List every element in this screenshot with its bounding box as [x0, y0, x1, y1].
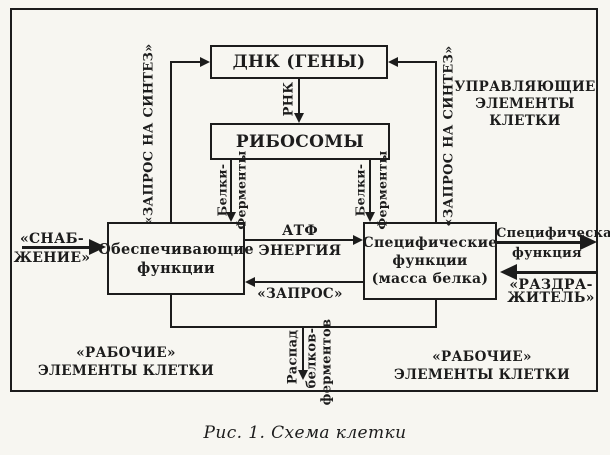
cell-scheme-diagram: ДНК (ГЕНЫ) РИБОСОМЫ Обеспечивающие функц… — [0, 0, 610, 455]
line-request-synthesis-right-horizontal — [398, 61, 437, 63]
line-stimulus-arrow — [516, 271, 598, 274]
box-specific-functions: Специфические функции (масса белка) — [363, 222, 497, 300]
label-proteins-left-word2: Ферменты — [234, 150, 249, 229]
box-supporting-functions: Обеспечивающие функции — [107, 222, 245, 295]
label-request: «ЗАПРОС» — [240, 286, 360, 303]
box-dna-genes: ДНК (ГЕНЫ) — [210, 45, 388, 79]
line-request-synthesis-left-horizontal — [170, 61, 202, 63]
box-supporting-functions-label: Обеспечивающие функции — [98, 240, 254, 278]
line-request-arrow — [254, 281, 363, 283]
label-proteins-right-word2: Ферменты — [375, 150, 390, 229]
line-request-synthesis-left-vertical — [170, 61, 172, 222]
label-rna: РНК — [282, 82, 297, 117]
label-atp: АТФ — [245, 223, 355, 240]
line-request-synthesis-right-vertical — [435, 61, 437, 222]
arrowhead-into-dna-right-icon — [388, 57, 398, 67]
line-proteins-right-arrow — [369, 160, 371, 213]
label-specific-function-line2: функция — [496, 245, 598, 262]
arrowhead-into-dna-left-icon — [200, 57, 210, 67]
label-request-synthesis-left: «ЗАПРОС НА СИНТЕЗ» — [142, 43, 157, 224]
label-decay-word3: ферментов — [320, 319, 335, 406]
label-supply-line2: ЖЕНИЕ» — [11, 250, 93, 267]
label-proteins-right-word1: Белки- — [353, 164, 368, 217]
box-specific-functions-label: Специфические функции (масса белка) — [363, 234, 498, 288]
label-supply-line1: «СНАБ- — [11, 231, 93, 248]
box-dna-genes-label: ДНК (ГЕНЫ) — [233, 52, 366, 72]
label-decay-word1: Распад — [286, 330, 301, 385]
line-proteins-left-arrow — [230, 160, 232, 213]
label-stimulus-line2: ЖИТЕЛЬ» — [504, 290, 598, 307]
figure-caption: Рис. 1. Схема клетки — [0, 423, 610, 443]
line-bottom-connector-right — [435, 300, 437, 328]
label-proteins-left-word1: Белки- — [215, 164, 230, 217]
label-working-elements-right: «РАБОЧИЕ» ЭЛЕМЕНТЫ КЛЕТКИ — [384, 348, 580, 384]
label-specific-function-line1: Специфическая — [496, 225, 598, 242]
line-rna-arrow — [298, 79, 300, 115]
label-decay-word2: белков- — [305, 328, 320, 389]
label-energy: ЭНЕРГИЯ — [245, 243, 355, 260]
label-working-elements-left: «РАБОЧИЕ» ЭЛЕМЕНТЫ КЛЕТКИ — [28, 344, 224, 380]
label-request-synthesis-right: «ЗАПРОС НА СИНТЕЗ» — [442, 45, 457, 226]
line-bottom-connector-left — [170, 295, 172, 328]
box-ribosomes-label: РИБОСОМЫ — [236, 132, 364, 152]
label-controlling-elements: УПРАВЛЯЮЩИЕ ЭЛЕМЕНТЫ КЛЕТКИ — [450, 79, 600, 130]
